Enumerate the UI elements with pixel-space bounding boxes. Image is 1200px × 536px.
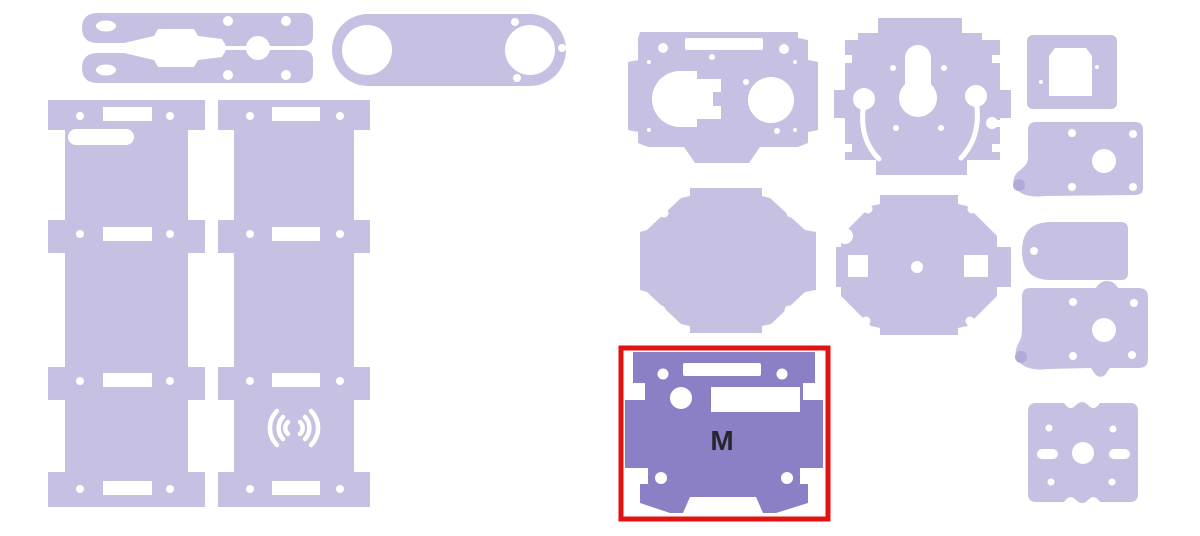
part-motor-plate[interactable] — [628, 32, 818, 163]
arm-bottom-outline — [82, 50, 313, 83]
part-label-m: M — [710, 425, 733, 456]
edge-shade — [1015, 351, 1027, 363]
part-caliper-arms[interactable] — [82, 13, 313, 83]
part-side-plate-a[interactable] — [1013, 122, 1143, 197]
parts-canvas: M — [0, 0, 1200, 536]
part-window-plate[interactable] — [1027, 35, 1117, 109]
arm-top-outline — [82, 13, 313, 46]
edge-shade — [1013, 179, 1025, 191]
part-keyhole-plate[interactable] — [834, 18, 1011, 175]
part-side-panel-2-speaker[interactable] — [218, 100, 370, 507]
part-capsule-plate[interactable] — [332, 14, 566, 86]
part-round-plate-slots[interactable] — [836, 195, 1011, 335]
plate-outline — [1016, 281, 1148, 377]
part-base-plate-m[interactable]: M — [625, 352, 823, 513]
part-mount-plate[interactable] — [1028, 402, 1138, 503]
panel-outline — [48, 100, 205, 507]
panel-outline — [218, 100, 370, 507]
plate-outline — [1014, 122, 1143, 197]
tag-hole — [1030, 247, 1038, 255]
part-side-plate-b[interactable] — [1015, 281, 1148, 377]
part-round-plate-plain[interactable] — [640, 188, 816, 333]
part-tag-plate[interactable] — [1022, 222, 1128, 280]
part-side-panel-1[interactable] — [48, 100, 205, 507]
